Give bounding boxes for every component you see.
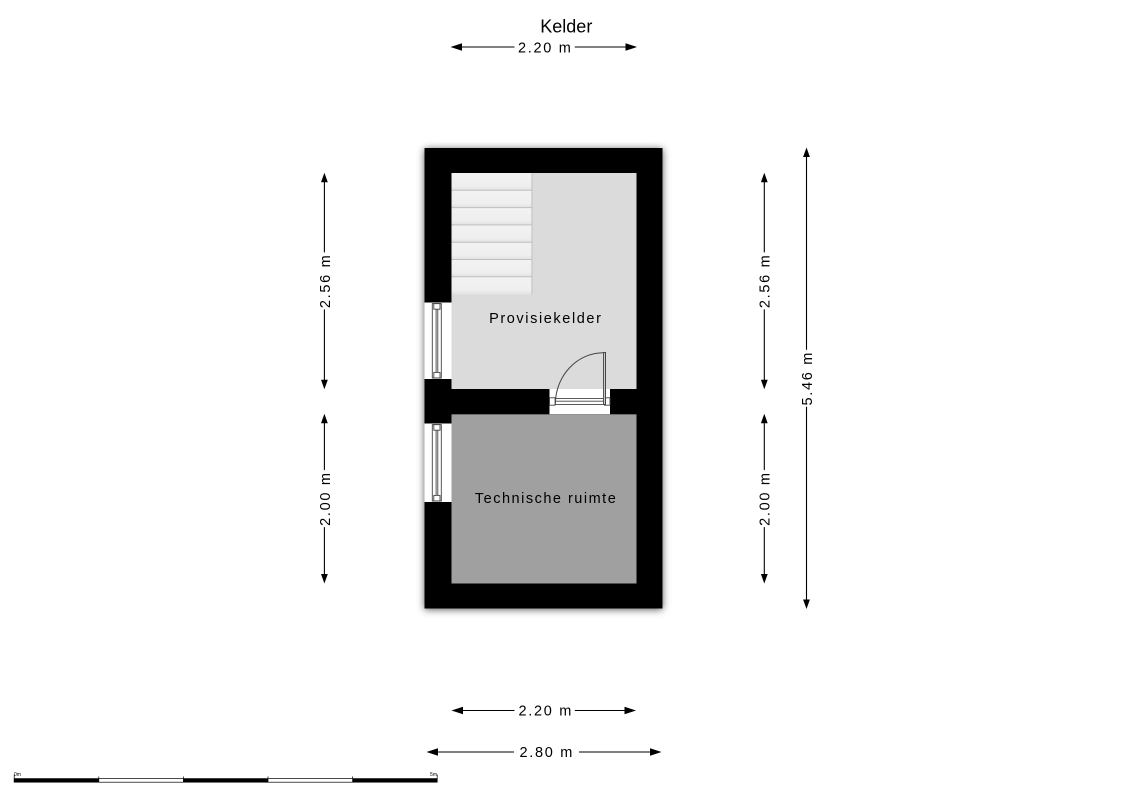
svg-text:2.56 m: 2.56 m: [758, 254, 774, 309]
svg-text:Provisiekelder: Provisiekelder: [489, 311, 602, 327]
svg-text:0m: 0m: [14, 772, 21, 778]
svg-text:5m: 5m: [430, 772, 437, 778]
svg-text:2.20 m: 2.20 m: [519, 704, 574, 720]
svg-text:5.46 m: 5.46 m: [800, 351, 816, 406]
svg-text:Technische ruimte: Technische ruimte: [475, 491, 617, 507]
svg-text:2.00 m: 2.00 m: [318, 471, 334, 526]
svg-text:Kelder: Kelder: [540, 16, 592, 36]
svg-text:2.56 m: 2.56 m: [318, 254, 334, 309]
svg-text:2.80 m: 2.80 m: [520, 745, 575, 761]
svg-text:2.20 m: 2.20 m: [518, 40, 573, 56]
svg-text:2.00 m: 2.00 m: [758, 471, 774, 526]
